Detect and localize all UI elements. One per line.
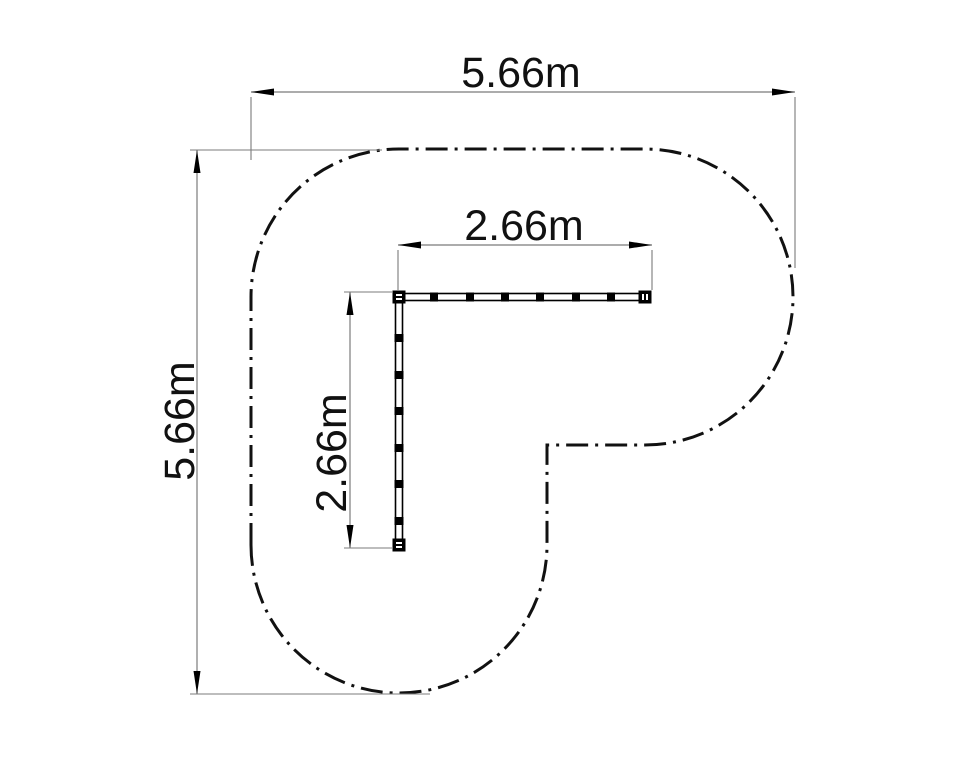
dimension-label-overall-width: 5.66m	[461, 49, 581, 97]
dimension-overall-height: 5.66m	[156, 150, 430, 694]
beam-cap-slot	[396, 298, 402, 300]
beam-cap-slot	[396, 294, 402, 296]
arrowhead-right-icon	[629, 242, 652, 249]
dimension-label-beam-vertical: 2.66m	[308, 393, 356, 513]
beam-joint	[607, 293, 615, 302]
arrowhead-left-icon	[398, 242, 421, 249]
arrowhead-left-icon	[251, 89, 274, 96]
beam-joint	[536, 293, 544, 302]
beam-end-cap-right	[639, 291, 652, 304]
beam-joint	[395, 517, 404, 525]
beam-joint	[466, 293, 474, 302]
beam-end-caps	[393, 291, 652, 552]
beam-end-cap-corner	[393, 291, 406, 304]
dimension-beam-horizontal: 2.66m	[398, 202, 652, 291]
beam-end-cap-bottom	[393, 539, 406, 552]
arrowhead-down-icon	[347, 525, 354, 548]
drawing-sheet: 5.66m 5.66m 2.66m 2.66m	[0, 0, 956, 768]
beam-joint	[395, 334, 404, 342]
beam-cap-slot	[646, 294, 648, 300]
dimension-label-beam-horizontal: 2.66m	[464, 202, 584, 250]
beam-assembly	[393, 291, 652, 552]
beam-joint	[572, 293, 580, 302]
beam-joint	[501, 293, 509, 302]
beam-joint	[395, 407, 404, 415]
arrowhead-up-icon	[347, 292, 354, 315]
beam-cap-slot	[396, 542, 402, 544]
beam-joint	[395, 480, 404, 488]
beam-joint	[395, 371, 404, 379]
beam-joint	[395, 444, 404, 452]
arrowhead-right-icon	[772, 89, 795, 96]
technical-drawing-canvas: 5.66m 5.66m 2.66m 2.66m	[0, 0, 956, 768]
beam-cap-slot	[396, 546, 402, 548]
beam-cap-slot	[642, 294, 644, 300]
dimension-label-overall-height: 5.66m	[156, 361, 204, 481]
dimension-beam-vertical: 2.66m	[308, 292, 392, 548]
beam-joint	[430, 293, 438, 302]
arrowhead-down-icon	[194, 671, 201, 694]
arrowhead-up-icon	[194, 150, 201, 173]
